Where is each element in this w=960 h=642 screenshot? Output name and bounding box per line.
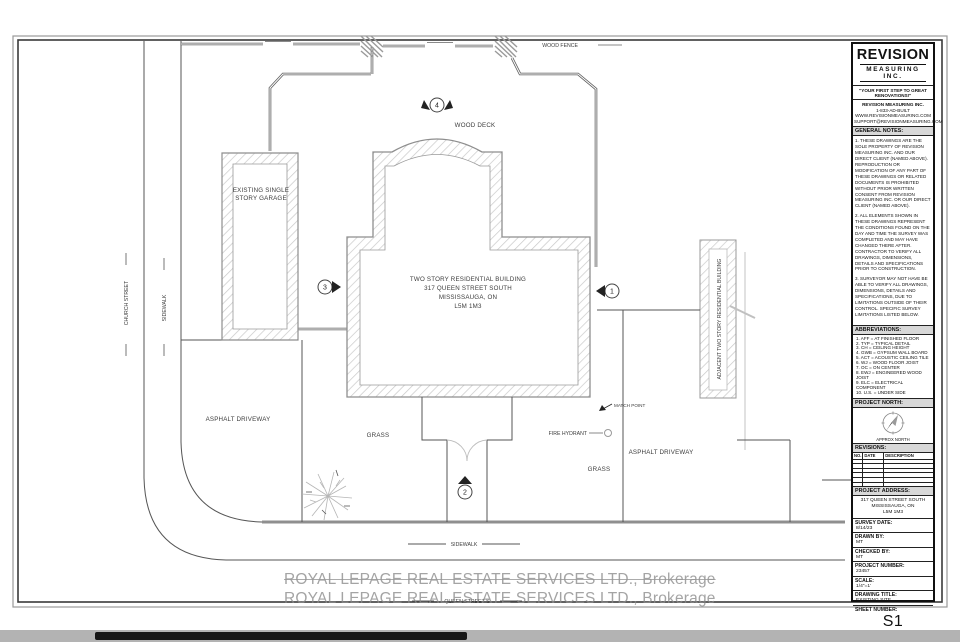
site-plan-drawing: 4 3 1 2 WOOD FENCE WOOD DECK EXISTING SI… <box>0 0 960 642</box>
project-north-heading: PROJECT NORTH: <box>853 399 933 408</box>
drawn-by-field: DRAWN BY: MT <box>853 533 933 548</box>
wood-deck-label: WOOD DECK <box>455 122 496 129</box>
logo-text: REVISION <box>855 48 931 63</box>
checked-by-label: CHECKED BY: <box>853 548 933 555</box>
adjacent-building <box>700 240 755 450</box>
drawing-title-field: DRAWING TITLE: EXISTING SITE <box>853 591 933 606</box>
detail-marker-1: 1 <box>596 284 619 298</box>
scale-label: SCALE: <box>853 577 933 584</box>
survey-date-value: 8/14/23 <box>853 526 933 533</box>
project-address: 317 QUEEN STREET SOUTH MISSISSAUGA, ON L… <box>853 496 933 519</box>
detail-marker-3: 3 <box>318 280 341 294</box>
porch-walkway <box>422 397 512 522</box>
general-notes: 1. THESE DRAWINGS ARE THE SOLE PROPERTY … <box>853 136 933 324</box>
project-address-heading: PROJECT ADDRESS: <box>853 487 933 496</box>
marker-4-number: 4 <box>435 103 439 110</box>
brokerage-watermark-line2: ROYAL LEPAGE REAL ESTATE SERVICES LTD., … <box>284 590 684 608</box>
project-address-line1: 317 QUEEN STREET SOUTH <box>853 498 933 504</box>
scale-value: 1/4"=1' <box>853 584 933 591</box>
project-north: APPROX NORTH <box>853 408 933 444</box>
contact-name: REVISION MEASURING INC. <box>854 102 932 108</box>
company-logo: REVISION MEASURING INC. <box>853 44 933 86</box>
survey-date-label: SURVEY DATE: <box>853 519 933 526</box>
revisions-table: NO. DATE DESCRIPTION <box>853 453 933 488</box>
house-label-line4: L5M 1M3 <box>454 303 482 310</box>
revisions-empty-row <box>853 482 933 487</box>
project-address-line3: L5M 1M3 <box>853 510 933 516</box>
sidewalk-west-label: SIDEWALK <box>162 294 168 321</box>
contact-website: WWW.REVISIONMEASURING.COM <box>854 113 932 119</box>
project-number-field: PROJECT NUMBER: 23457 <box>853 562 933 577</box>
main-house-building <box>347 139 590 397</box>
checked-by-field: CHECKED BY: MT <box>853 548 933 563</box>
detail-marker-2: 2 <box>458 476 472 499</box>
general-note-1: 1. THESE DRAWINGS ARE THE SOLE PROPERTY … <box>855 138 931 209</box>
drawn-by-value: MT <box>853 540 933 547</box>
bottom-scrollbar[interactable] <box>95 632 467 640</box>
grass-east-label: GRASS <box>588 466 611 473</box>
adjacent-building-label: ADJACENT TWO STORY RESIDENTIAL BUILDING <box>717 259 723 380</box>
contact-email: SUPPORT@REVISIONMEASURING.COM <box>854 119 932 125</box>
company-contact: REVISION MEASURING INC. 1-833-AD-BUILT W… <box>853 100 933 127</box>
fire-hydrant-symbol <box>589 430 612 437</box>
abbreviation-item: 10. U.S. = UNDER SIDE <box>856 391 931 396</box>
general-note-2: 2. ALL ELEMENTS SHOWN IN THESE DRAWINGS … <box>855 213 931 272</box>
checked-by-value: MT <box>853 555 933 562</box>
asphalt-driveway-east-label: ASPHALT DRIVEWAY <box>629 449 694 456</box>
tree-symbol <box>302 470 352 520</box>
drawing-title-value: EXISTING SITE <box>853 598 933 605</box>
general-notes-heading: GENERAL NOTES: <box>853 127 933 136</box>
detail-marker-4: 4 <box>421 98 453 112</box>
abbreviations-list: 1. AFF = AT FINISHED FLOOR 2. TYP = TYPI… <box>853 335 933 399</box>
sheet-number-label: SHEET NUMBER: <box>853 606 933 613</box>
scale-field: SCALE: 1/4"=1' <box>853 577 933 592</box>
title-block: REVISION MEASURING INC. "YOUR FIRST STEP… <box>851 42 935 602</box>
revisions-heading: REVISIONS: <box>853 444 933 453</box>
company-tagline: "YOUR FIRST STEP TO GREAT RENOVATIONS!" <box>853 86 933 100</box>
match-point-arrow <box>599 404 612 411</box>
marker-3-number: 3 <box>323 285 327 292</box>
street-label-ticks <box>126 253 164 356</box>
garage-building <box>222 153 298 340</box>
abbreviations-heading: ABBREVIATIONS: <box>853 325 933 335</box>
compass-icon <box>878 410 908 436</box>
sheet-number-value: S1 <box>853 613 933 631</box>
asphalt-driveway-west-label: ASPHALT DRIVEWAY <box>206 416 271 423</box>
grass-west-label: GRASS <box>367 432 390 439</box>
house-label-line2: 317 QUEEN STREET SOUTH <box>424 285 512 292</box>
house-label-line3: MISSISSAUGA, ON <box>439 294 497 301</box>
wood-fence-label: WOOD FENCE <box>542 43 578 49</box>
fire-hydrant-label: FIRE HYDRANT <box>549 431 588 437</box>
survey-date-field: SURVEY DATE: 8/14/23 <box>853 519 933 534</box>
sheet-number-field: SHEET NUMBER: S1 <box>853 606 933 631</box>
brokerage-watermark-line1: ROYAL LEPAGE REAL ESTATE SERVICES LTD., … <box>284 571 684 589</box>
drawn-by-label: DRAWN BY: <box>853 533 933 540</box>
project-number-value: 23457 <box>853 569 933 576</box>
marker-2-number: 2 <box>463 490 467 497</box>
match-point-label: MATCH POINT <box>614 403 645 408</box>
house-label-line1: TWO STORY RESIDENTIAL BUILDING <box>410 276 526 283</box>
church-street-label: CHURCH STREET <box>124 280 130 325</box>
logo-subtext: MEASURING INC. <box>860 64 926 82</box>
general-note-3: 3. SURVEYOR MAY NOT HAVE BE ABLE TO VERI… <box>855 276 931 317</box>
garage-label-line2: STORY GARAGE <box>235 195 287 202</box>
compass-caption: APPROX NORTH <box>876 437 909 442</box>
marker-1-number: 1 <box>610 289 614 296</box>
garage-label-line1: EXISTING SINGLE <box>233 187 289 194</box>
sidewalk-south-label: SIDEWALK <box>451 542 478 548</box>
